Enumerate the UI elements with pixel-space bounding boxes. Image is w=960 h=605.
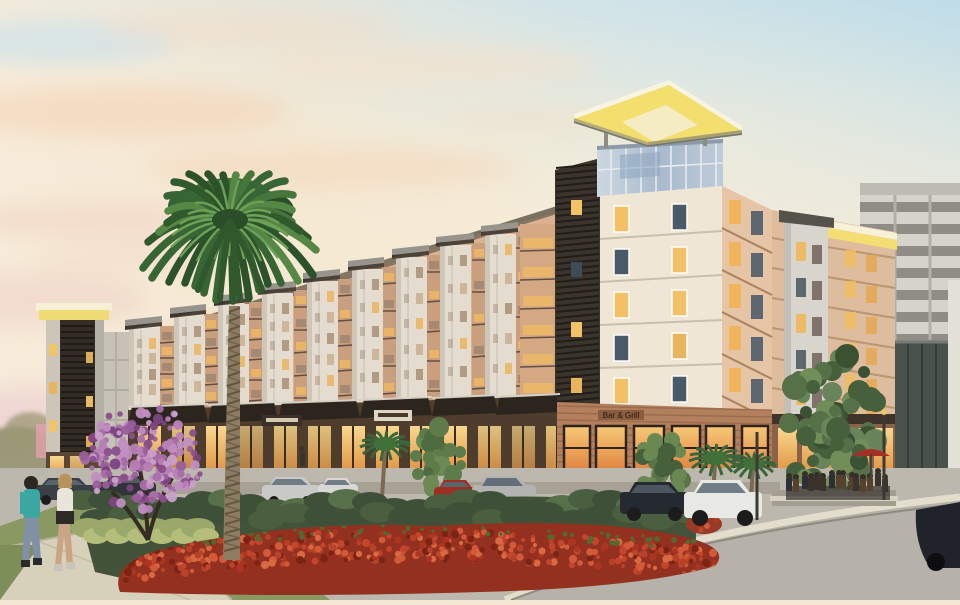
svg-text:Bar & Grill: Bar & Grill bbox=[603, 411, 640, 420]
